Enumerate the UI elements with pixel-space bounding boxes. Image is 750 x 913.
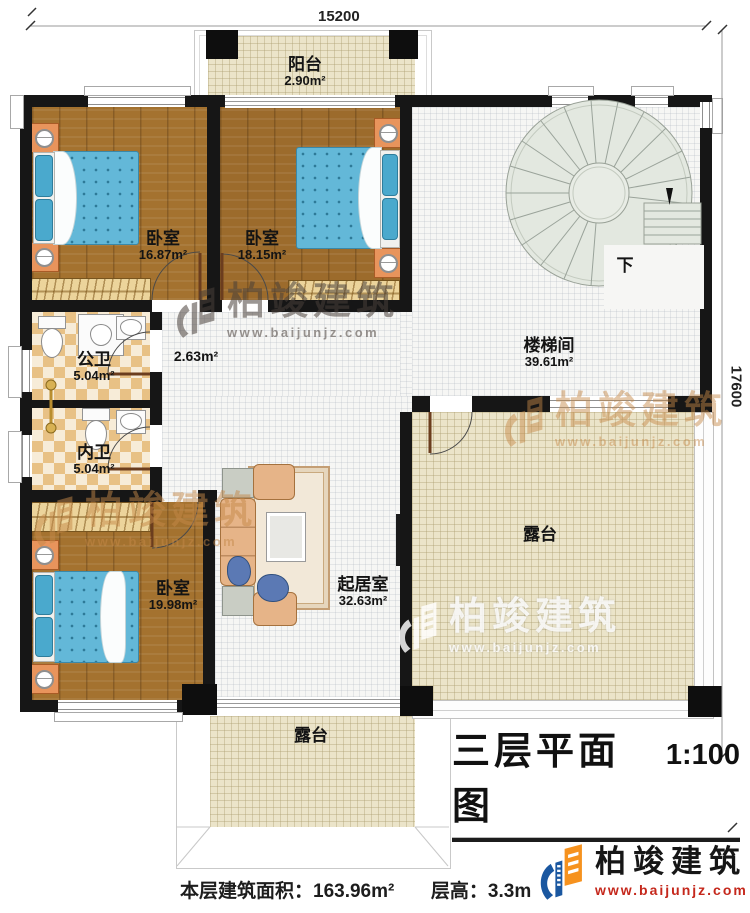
- lamp-icon: [379, 254, 398, 273]
- side-table: [222, 468, 254, 498]
- pillow: [35, 575, 53, 615]
- window-sill: [548, 86, 594, 96]
- floor-height-text: 层高：3.3m: [431, 881, 531, 902]
- column: [400, 686, 433, 716]
- room-label-stairwell: 楼梯间 39.61m²: [524, 336, 575, 370]
- side-table: [222, 586, 254, 616]
- nightstand: [30, 242, 59, 272]
- lamp-icon: [35, 546, 54, 565]
- window-sill: [8, 346, 22, 398]
- window: [552, 95, 588, 107]
- living-sliding-door: [217, 697, 401, 713]
- column: [389, 30, 418, 59]
- nightstand: [30, 123, 59, 153]
- drawing-title-block: 三层平面图 1:100: [452, 720, 740, 842]
- brand-logo: 柏竣建筑 www.baijunjz.com: [533, 842, 748, 902]
- room-label-bedroom1: 卧室 16.87m²: [139, 229, 187, 263]
- room-label-corridor: 2.63m²: [174, 349, 218, 365]
- wall: [200, 300, 222, 312]
- window: [700, 102, 712, 128]
- coffee-table: [266, 512, 306, 562]
- stairs-down-label: 下: [617, 256, 634, 275]
- floor-info: 本层建筑面积：163.96m² 层高：3.3m: [180, 876, 531, 903]
- dimension-top: 15200: [318, 8, 360, 25]
- room-label-balcony: 阳台 2.90m²: [284, 55, 325, 89]
- wall: [268, 300, 412, 312]
- wall: [412, 396, 430, 412]
- room-label-terrace-bottom: 露台: [294, 726, 328, 745]
- brand-name: 柏竣建筑: [595, 846, 748, 877]
- window: [88, 95, 185, 107]
- lamp-icon: [35, 248, 54, 267]
- wall: [472, 396, 550, 412]
- wall: [700, 95, 712, 102]
- room-label-bedroom2: 卧室 18.15m²: [238, 229, 286, 263]
- pillow: [35, 617, 53, 657]
- person-figure: [227, 556, 251, 586]
- wall: [150, 312, 162, 330]
- wall: [203, 490, 215, 712]
- lamp-icon: [35, 129, 54, 148]
- terrace-right-floor: [412, 412, 694, 700]
- bed-sheet: [100, 571, 126, 663]
- room-label-terrace-right: 露台: [523, 525, 557, 544]
- column: [688, 686, 722, 717]
- lamp-icon: [35, 670, 54, 689]
- window-sill: [8, 431, 22, 483]
- window-sill: [54, 712, 183, 722]
- pillow: [35, 155, 53, 197]
- brand-url: www.baijunjz.com: [595, 882, 748, 898]
- lamp-icon: [379, 124, 398, 143]
- wall: [400, 95, 412, 309]
- window: [550, 398, 668, 411]
- wall: [700, 128, 712, 412]
- wall: [150, 372, 162, 425]
- person-figure: [257, 574, 289, 602]
- drawing-scale: 1:100: [666, 739, 740, 772]
- bed-sheet: [358, 147, 382, 249]
- dimension-right: 17600: [728, 357, 745, 417]
- armchair: [253, 464, 295, 500]
- wall: [207, 95, 220, 312]
- nightstand: [30, 540, 59, 570]
- window-sill: [10, 95, 24, 129]
- window-sill: [84, 86, 191, 96]
- wall: [20, 400, 162, 408]
- wall: [395, 95, 552, 107]
- pillow: [35, 199, 53, 241]
- wall: [20, 700, 58, 712]
- brand-logo-icon: [533, 842, 587, 902]
- pillow: [382, 198, 398, 240]
- window-sill: [712, 98, 723, 134]
- wall: [400, 412, 412, 700]
- nightstand: [374, 118, 402, 148]
- wall: [20, 477, 32, 712]
- wardrobe: [30, 502, 151, 532]
- room-label-bedroom3: 卧室 19.98m²: [149, 579, 197, 613]
- terrace-parapet: [694, 412, 714, 719]
- floor-plan: 阳台 2.90m² 卧室 16.87m² 卧室 18.15m² 楼梯间 39.6…: [0, 0, 750, 913]
- column: [206, 30, 238, 59]
- window: [635, 95, 668, 107]
- wall: [20, 300, 152, 312]
- floor-area-text: 本层建筑面积：163.96m²: [180, 881, 394, 902]
- nightstand: [30, 664, 59, 694]
- room-label-public-bath: 公卫 5.04m²: [73, 350, 114, 384]
- wall: [20, 392, 32, 435]
- passage-floor: [400, 309, 412, 396]
- drawing-title: 三层平面图: [452, 720, 652, 830]
- wall: [20, 490, 152, 502]
- nightstand: [374, 248, 402, 278]
- terrace-parapet: [412, 700, 714, 719]
- window: [58, 700, 177, 712]
- window-sill: [631, 86, 674, 96]
- room-label-living: 起居室 32.63m²: [338, 575, 389, 609]
- column: [182, 684, 217, 715]
- pillow: [382, 154, 398, 196]
- room-label-private-bath: 内卫 5.04m²: [73, 443, 114, 477]
- bed: [53, 571, 139, 663]
- balcony-sliding-door: [225, 95, 395, 108]
- wall: [588, 95, 635, 107]
